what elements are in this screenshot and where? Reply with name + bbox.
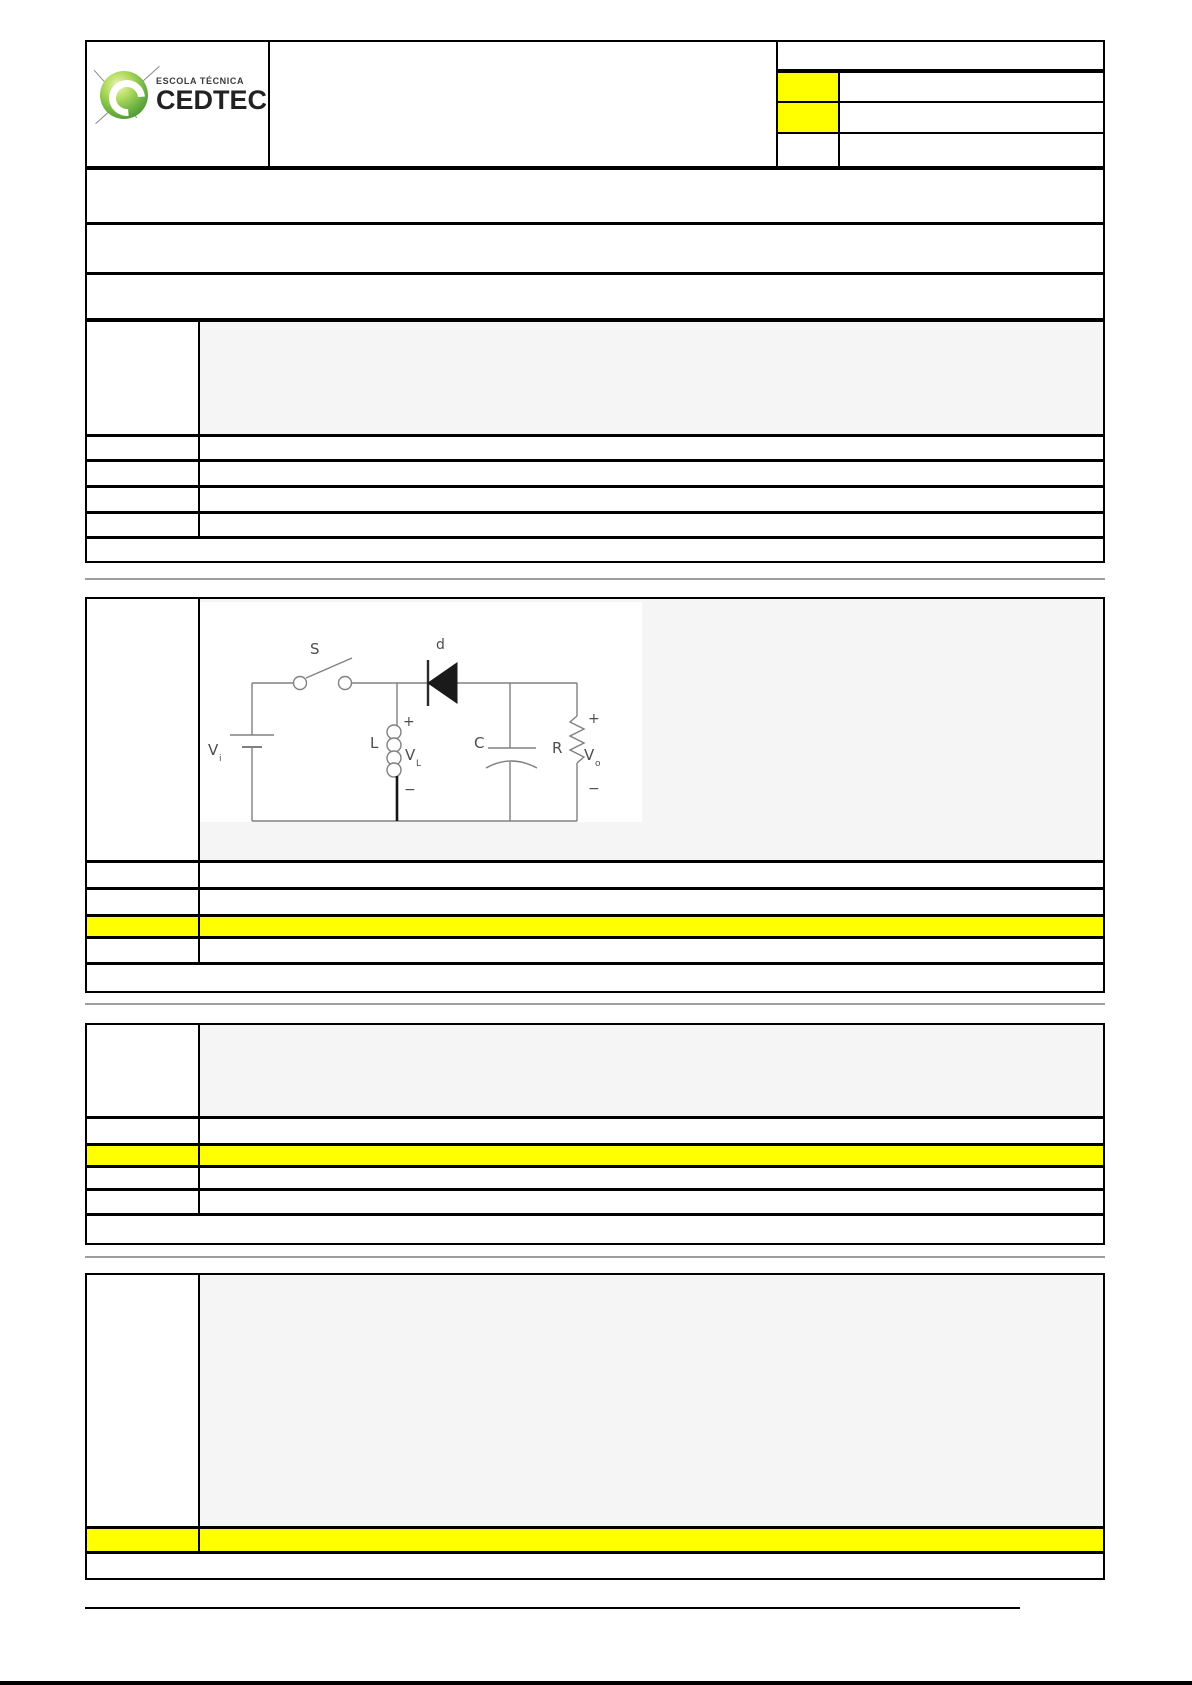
table-row: [87, 170, 1103, 225]
source-label: V: [208, 741, 219, 759]
minus-sign: −: [588, 781, 600, 797]
header-info-value-cell: [840, 103, 1103, 132]
logo-cell: ESCOLA TÉCNICA CEDTEC: [87, 42, 270, 166]
circuit-image: S d V i L + V L − C R + V o −: [200, 602, 642, 822]
circuit-diagram: S d V i L + V L − C R + V o −: [200, 602, 642, 822]
table-row: [87, 437, 1103, 462]
table-row: [87, 890, 1103, 917]
table-row: [87, 1191, 1103, 1216]
source-label-sub: i: [219, 754, 222, 764]
switch-label: S: [310, 640, 320, 658]
table-row: [87, 1168, 1103, 1191]
row-content-cell: S d V i L + V L − C R + V o −: [200, 599, 1103, 860]
table-row: [87, 1275, 1103, 1529]
resistor: [570, 683, 584, 821]
row-label-cell: [87, 1025, 200, 1116]
header-info-table: [778, 42, 1103, 166]
header-info-value-cell: [840, 73, 1103, 101]
resistor-label: R: [552, 739, 562, 757]
row-content-cell: [200, 322, 1103, 434]
section2-table: S d V i L + V L − C R + V o −: [85, 597, 1105, 993]
footer-separator-line: [85, 1607, 1020, 1609]
logo-globe-icon: [97, 68, 151, 122]
inductor-voltage-label: V: [405, 746, 416, 764]
output-voltage-label: V: [584, 746, 595, 764]
switch: [294, 658, 353, 690]
cedtec-logo: ESCOLA TÉCNICA CEDTEC: [97, 68, 267, 122]
table-row: [87, 275, 1103, 322]
header-info-value-cell: [840, 134, 1103, 166]
document-page: ESCOLA TÉCNICA CEDTEC: [0, 0, 1192, 1685]
logo-school-name: CEDTEC: [156, 87, 267, 114]
row-label-cell: [87, 322, 200, 434]
header-info-row: [778, 42, 1103, 73]
capacitor-label: C: [474, 734, 484, 752]
table-row: [87, 514, 1103, 539]
table-row: [87, 322, 1103, 437]
header-info-row: [778, 103, 1103, 134]
highlighted-table-row: [87, 1529, 1103, 1554]
output-voltage-sub: o: [595, 759, 601, 769]
table-row: [87, 1025, 1103, 1119]
row-label-cell: [87, 1275, 200, 1526]
header-info-key-cell: [778, 103, 840, 132]
circuit-figure-row: S d V i L + V L − C R + V o −: [87, 599, 1103, 863]
table-row: [87, 225, 1103, 275]
table-row: [87, 939, 1103, 965]
minus-sign: −: [404, 782, 416, 798]
diode-label: d: [436, 637, 445, 653]
section3-table: [85, 1023, 1105, 1245]
table-row: [87, 462, 1103, 488]
row-label-cell: [87, 599, 200, 860]
table-row: [87, 1119, 1103, 1146]
section1-table: [85, 168, 1105, 563]
plus-sign: +: [403, 714, 415, 730]
inductor-label: L: [370, 734, 379, 752]
diode: [428, 660, 457, 706]
highlighted-table-row: [87, 1146, 1103, 1168]
page-bottom-border: [0, 1681, 1192, 1685]
table-row: [87, 488, 1103, 514]
section-divider-line: [85, 578, 1105, 580]
highlighted-table-row: [87, 917, 1103, 939]
row-content-cell: [200, 1275, 1103, 1526]
inductor: [387, 683, 401, 821]
section4-table: [85, 1273, 1105, 1580]
header-table: ESCOLA TÉCNICA CEDTEC: [85, 40, 1105, 168]
header-title-cell: [270, 42, 778, 166]
logo-text: ESCOLA TÉCNICA CEDTEC: [156, 77, 267, 114]
header-info-row: [778, 73, 1103, 103]
voltage-source: [230, 683, 274, 821]
row-content-cell: [200, 1025, 1103, 1116]
header-info-row: [778, 134, 1103, 166]
capacitor: [486, 683, 537, 821]
header-info-key-cell: [778, 134, 840, 166]
header-info-key-cell: [778, 73, 840, 101]
plus-sign: +: [588, 711, 600, 727]
section-divider-line: [85, 1003, 1105, 1005]
table-row: [87, 863, 1103, 890]
section-divider-line: [85, 1256, 1105, 1258]
inductor-voltage-sub: L: [416, 759, 421, 769]
